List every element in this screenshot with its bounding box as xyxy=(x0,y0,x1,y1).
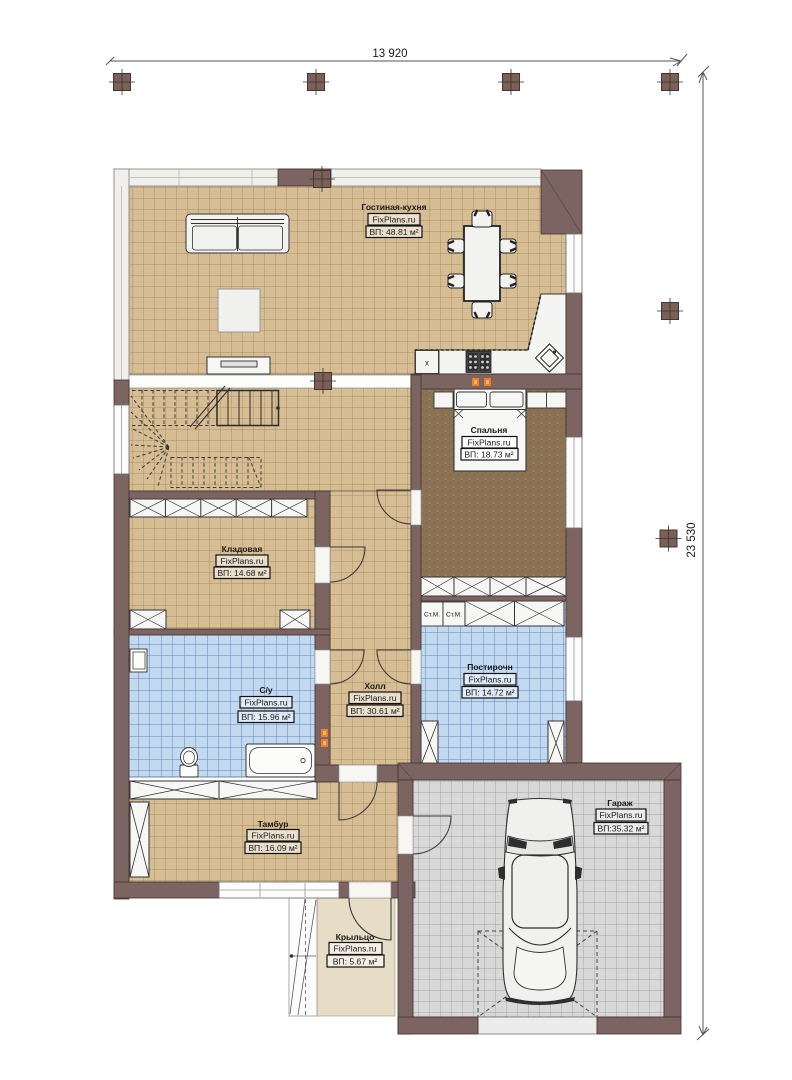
svg-text:Гараж: Гараж xyxy=(607,798,633,808)
svg-text:ВП: 18.73 м²: ВП: 18.73 м² xyxy=(464,450,513,460)
svg-text:FixPlans.ru: FixPlans.ru xyxy=(221,556,264,566)
svg-text:ВП: 14.68 м²: ВП: 14.68 м² xyxy=(217,568,266,578)
svg-text:13 920: 13 920 xyxy=(372,48,407,60)
svg-text:ВП: 15.96 м²: ВП: 15.96 м² xyxy=(241,712,290,722)
svg-text:FixPlans.ru: FixPlans.ru xyxy=(600,810,643,820)
svg-text:ВП:35.32 м²: ВП:35.32 м² xyxy=(598,824,645,834)
svg-text:ВП: 30.61 м²: ВП: 30.61 м² xyxy=(350,706,399,716)
svg-text:23 530: 23 530 xyxy=(686,522,698,557)
svg-text:FixPlans.ru: FixPlans.ru xyxy=(252,831,295,841)
svg-text:Постирочн: Постирочн xyxy=(467,662,513,672)
svg-text:ВП: 16.09 м²: ВП: 16.09 м² xyxy=(248,843,297,853)
svg-text:FixPlans.ru: FixPlans.ru xyxy=(373,215,416,225)
svg-text:Ст.М.: Ст.М. xyxy=(424,612,440,619)
svg-text:FixPlans.ru: FixPlans.ru xyxy=(354,693,397,703)
svg-text:FixPlans.ru: FixPlans.ru xyxy=(469,675,512,685)
svg-text:Ст.М.: Ст.М. xyxy=(446,612,462,619)
svg-text:x: x xyxy=(425,359,429,368)
svg-text:Спальня: Спальня xyxy=(471,425,508,435)
svg-text:С/у: С/у xyxy=(259,685,273,695)
svg-text:FixPlans.ru: FixPlans.ru xyxy=(245,698,288,708)
svg-text:Гостиная-кухня: Гостиная-кухня xyxy=(361,202,426,212)
svg-text:Кладовая: Кладовая xyxy=(222,544,263,554)
svg-text:ВП: 48.81 м²: ВП: 48.81 м² xyxy=(369,227,418,237)
svg-text:Холл: Холл xyxy=(364,681,385,691)
svg-text:FixPlans.ru: FixPlans.ru xyxy=(468,438,511,448)
svg-text:FixPlans.ru: FixPlans.ru xyxy=(334,944,377,954)
svg-text:Тамбур: Тамбур xyxy=(258,819,289,829)
svg-text:ВП: 14.72 м²: ВП: 14.72 м² xyxy=(465,688,514,698)
svg-text:ВП: 5.67 м²: ВП: 5.67 м² xyxy=(333,957,378,967)
svg-text:Крыльцо: Крыльцо xyxy=(336,932,375,942)
